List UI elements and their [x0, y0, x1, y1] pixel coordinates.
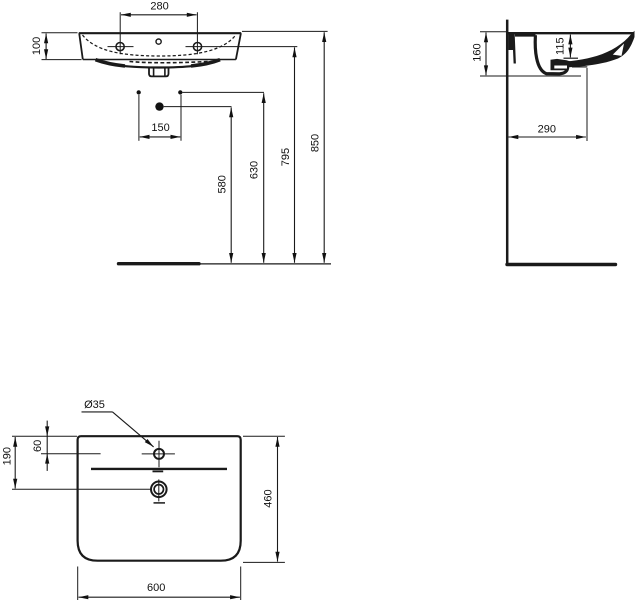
- svg-text:290: 290: [538, 124, 556, 136]
- svg-text:115: 115: [554, 37, 566, 55]
- svg-text:190: 190: [2, 447, 14, 465]
- svg-text:Ø35: Ø35: [84, 399, 105, 411]
- svg-text:460: 460: [263, 489, 275, 507]
- svg-text:580: 580: [216, 175, 228, 193]
- svg-text:795: 795: [280, 148, 292, 166]
- svg-text:160: 160: [471, 43, 483, 61]
- svg-text:280: 280: [150, 1, 168, 13]
- svg-text:100: 100: [31, 37, 43, 55]
- svg-text:630: 630: [249, 161, 261, 179]
- svg-text:600: 600: [147, 582, 165, 594]
- svg-text:150: 150: [151, 122, 169, 134]
- svg-text:850: 850: [310, 134, 322, 152]
- svg-text:60: 60: [32, 440, 44, 452]
